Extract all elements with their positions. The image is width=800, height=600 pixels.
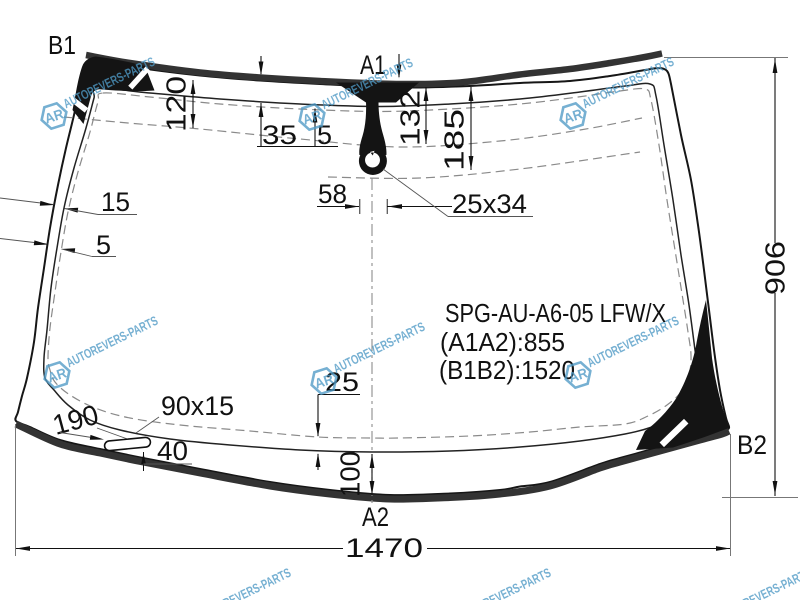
svg-text:58: 58	[318, 179, 347, 209]
svg-text:A2: A2	[362, 502, 389, 532]
svg-text:906: 906	[760, 241, 791, 295]
svg-text:(A1A2):855: (A1A2):855	[440, 327, 565, 357]
svg-text:B1: B1	[48, 30, 76, 60]
svg-text:(B1B2):1520: (B1B2):1520	[439, 355, 575, 385]
svg-text:100: 100	[334, 451, 365, 497]
svg-text:185: 185	[438, 109, 469, 171]
svg-text:25x34: 25x34	[452, 189, 527, 219]
svg-text:5: 5	[96, 230, 111, 260]
svg-text:120: 120	[160, 76, 191, 132]
svg-text:SPG-AU-A6-05 LFW/X: SPG-AU-A6-05 LFW/X	[445, 298, 666, 328]
svg-text:15: 15	[101, 187, 130, 217]
svg-text:35: 35	[262, 120, 297, 150]
svg-text:1470: 1470	[345, 533, 423, 563]
svg-text:B2: B2	[737, 430, 767, 460]
svg-text:90x15: 90x15	[161, 391, 234, 421]
svg-text:40: 40	[157, 436, 188, 466]
svg-text:132: 132	[394, 90, 425, 146]
svg-text:5: 5	[317, 120, 332, 150]
